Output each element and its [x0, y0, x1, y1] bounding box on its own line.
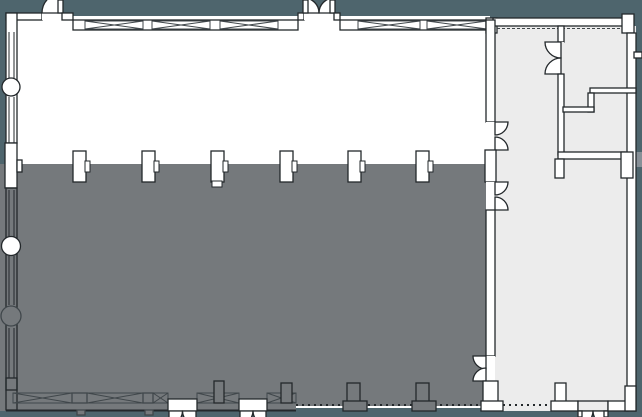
wall-annex-v1-upper [558, 26, 564, 42]
column-4-nub [292, 161, 297, 172]
column-2 [142, 151, 155, 182]
pier-annex-s [555, 383, 566, 403]
door-s2-threshold [239, 399, 267, 411]
door-s1-swing-east [183, 411, 197, 417]
exterior-ledge [636, 152, 642, 167]
column-4 [280, 151, 293, 182]
round-column-1 [2, 78, 20, 96]
door-nw-leaf [58, 0, 63, 13]
door-divide3-threshold [486, 356, 495, 381]
floor-plan-svg[interactable] [0, 0, 642, 417]
wall-annex-top [493, 18, 624, 26]
door-divide1-threshold [486, 122, 495, 150]
wall-west-pier-nub [17, 160, 22, 172]
wall-annex-h1-stub [555, 159, 564, 178]
column-s-5-base [343, 401, 367, 411]
floor-plan [0, 0, 642, 417]
wall-annex-h1-pier [621, 152, 633, 178]
wall-divide-base [481, 401, 503, 411]
column-2-nub [154, 161, 159, 172]
column-s-3 [214, 381, 224, 403]
door-se-leaf-west [578, 411, 582, 417]
wall-annex-step-a [590, 88, 636, 93]
door-s1-swing-west [169, 411, 183, 417]
column-s-6-base [412, 401, 436, 411]
column-s-5 [347, 383, 360, 403]
column-3-foot [212, 181, 222, 187]
column-1-nub [85, 161, 90, 172]
wall-divide-pier-s [483, 381, 498, 403]
column-3 [211, 151, 224, 182]
column-5 [348, 151, 361, 182]
wall-se-pier [625, 386, 636, 411]
wall-annex-h1 [558, 152, 625, 159]
door-n-threshold [304, 13, 334, 20]
column-divide-pier [485, 150, 496, 182]
door-divide2-threshold [486, 182, 495, 210]
door-se-threshold [578, 401, 608, 411]
wall-divide-mid [486, 210, 495, 356]
column-1 [73, 151, 86, 182]
column-6 [416, 151, 429, 182]
round-column-2 [2, 237, 21, 256]
wall-divide-upper [486, 20, 495, 122]
door-n-pier-east [334, 13, 340, 20]
door-n-leaf-east [330, 0, 335, 13]
column-5-nub [360, 161, 365, 172]
door-s1-threshold [168, 399, 197, 411]
wall-ne-pier [622, 14, 634, 33]
stub-s-1 [77, 410, 85, 415]
column-6-nub [428, 161, 433, 172]
wall-annex-v1-lower [558, 74, 564, 155]
door-nw-threshold [42, 13, 62, 20]
pier-annex-s-base [551, 401, 578, 411]
shaded-zone [0, 164, 486, 411]
stub-s-2 [145, 410, 153, 415]
annex-floor [495, 26, 636, 411]
wall-ne-notch [634, 52, 642, 58]
door-s2-swing-west [240, 411, 253, 417]
door-se-leaf-east [604, 411, 608, 417]
door-n-pier-west [298, 13, 304, 20]
door-n-leaf-west [303, 0, 308, 13]
column-s-6 [416, 383, 429, 403]
round-column-3 [1, 306, 21, 326]
column-s-4 [281, 383, 292, 403]
door-s2-swing-east [253, 411, 266, 417]
wall-annex-step-c [563, 107, 594, 112]
column-3-nub [223, 161, 228, 172]
wall-west-pier [5, 143, 17, 188]
wall-top-a [62, 13, 73, 20]
